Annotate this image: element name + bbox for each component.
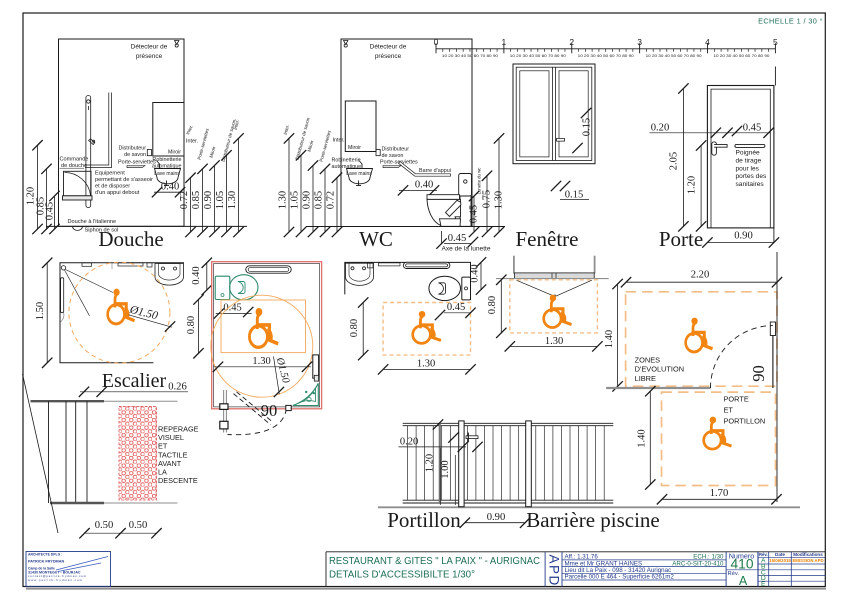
svg-text:de savon: de savon (124, 152, 146, 158)
svg-text:0.40: 0.40 (470, 264, 481, 282)
svg-text:10 20 30 40 50 60 70 80 90: 10 20 30 40 50 60 70 80 90 (578, 53, 635, 58)
svg-text:ARC-0-SIT-20-410: ARC-0-SIT-20-410 (672, 560, 724, 567)
svg-text:0.90: 0.90 (302, 191, 313, 209)
svg-text:3: 3 (637, 37, 642, 47)
svg-text:1.30: 1.30 (252, 356, 270, 367)
svg-text:0.90: 0.90 (487, 512, 506, 523)
svg-text:portes des: portes des (736, 173, 767, 180)
svg-text:0.15: 0.15 (582, 118, 593, 136)
svg-text:1: 1 (502, 37, 507, 47)
svg-text:15/06/2015: 15/06/2015 (769, 558, 791, 563)
svg-text:Distributeur: Distributeur (118, 146, 146, 152)
svg-text:2.05: 2.05 (669, 152, 680, 170)
svg-text:10 20 30 40 50 60 70 80 90: 10 20 30 40 50 60 70 80 90 (510, 53, 567, 58)
svg-text:2: 2 (569, 37, 574, 47)
svg-text:Fenêtre: Fenêtre (516, 227, 579, 251)
svg-text:0.45: 0.45 (743, 123, 762, 134)
svg-text:ZONES: ZONES (635, 356, 661, 365)
svg-text:1.05: 1.05 (215, 191, 226, 209)
svg-text:90: 90 (749, 365, 768, 382)
svg-text:ARCHITECTE DPLG :: ARCHITECTE DPLG : (28, 553, 62, 557)
svg-text:DESCENTE: DESCENTE (158, 476, 198, 485)
svg-text:RESTAURANT & GITES " LA PAIX ": RESTAURANT & GITES " LA PAIX " - AURIGNA… (329, 556, 540, 567)
svg-text:PORTE: PORTE (724, 395, 749, 404)
svg-text:Commande: Commande (60, 157, 89, 163)
svg-text:de tirage: de tirage (736, 157, 762, 164)
svg-text:Miroir: Miroir (348, 145, 361, 151)
svg-text:1.40: 1.40 (604, 330, 615, 348)
svg-text:0.20: 0.20 (400, 436, 418, 447)
svg-text:Robinetterie: Robinetterie (332, 158, 361, 164)
svg-text:ET: ET (724, 406, 734, 415)
svg-text:4: 4 (705, 37, 710, 47)
svg-text:0.40: 0.40 (415, 180, 433, 191)
svg-text:2.20: 2.20 (691, 270, 710, 281)
svg-text:d'un appui debout: d'un appui debout (95, 190, 140, 196)
svg-text:Rév.: Rév. (759, 552, 768, 557)
svg-text:permettant de s'asseoir: permettant de s'asseoir (95, 177, 153, 183)
svg-text:Détecteur de: Détecteur de (370, 44, 407, 51)
svg-text:1.70: 1.70 (710, 488, 729, 499)
svg-text:présence: présence (375, 53, 402, 60)
svg-text:APD: APD (547, 555, 562, 587)
svg-text:Miroir: Miroir (168, 150, 181, 156)
svg-text:Poignée: Poignée (736, 150, 761, 157)
svg-text:1.20: 1.20 (687, 176, 698, 194)
svg-text:Lave mains: Lave mains (346, 171, 372, 177)
svg-text:Modifications: Modifications (793, 552, 823, 557)
svg-text:Rév.: Rév. (728, 571, 740, 577)
svg-text:Lave mains: Lave mains (154, 171, 180, 177)
svg-text:et de disposer: et de disposer (95, 184, 130, 190)
svg-text:5: 5 (773, 37, 778, 47)
svg-text:Détecteur de: Détecteur de (131, 44, 168, 51)
svg-text:0.90: 0.90 (734, 231, 753, 242)
svg-text:0.20: 0.20 (651, 123, 670, 134)
svg-text:1.40: 1.40 (637, 429, 648, 447)
svg-text:ECHELLE 1 / 30 °: ECHELLE 1 / 30 ° (758, 17, 823, 26)
svg-text:présence: présence (136, 53, 163, 60)
svg-text:Date: Date (775, 552, 785, 557)
svg-text:10 20 30 40 50 60 70 80 90: 10 20 30 40 50 60 70 80 90 (713, 53, 770, 58)
svg-text:PATRICK FRYDMAN: PATRICK FRYDMAN (28, 559, 64, 563)
svg-text:1.30: 1.30 (545, 336, 563, 347)
svg-text:Inter.: Inter. (333, 138, 345, 144)
svg-text:Inter.: Inter. (186, 139, 198, 145)
svg-text:1.30: 1.30 (417, 358, 435, 369)
svg-text:0.85: 0.85 (191, 191, 202, 209)
svg-text:Barre d'appui: Barre d'appui (419, 168, 451, 174)
svg-text:DETAILS D'ACCESSIBILTE 1/30°: DETAILS D'ACCESSIBILTE 1/30° (329, 570, 475, 581)
svg-text:Barrière piscine: Barrière piscine (526, 508, 660, 532)
svg-text:0.45: 0.45 (45, 202, 56, 220)
svg-text:0.72: 0.72 (326, 191, 337, 209)
svg-text:0.45: 0.45 (448, 233, 467, 244)
svg-text:EMISSION APD: EMISSION APD (792, 558, 823, 563)
svg-text:0.80: 0.80 (487, 296, 498, 314)
svg-text:A: A (739, 574, 748, 588)
svg-text:D'EVOLUTION: D'EVOLUTION (635, 365, 684, 374)
svg-text:10 20 30 40 50 60 70 80 90: 10 20 30 40 50 60 70 80 90 (442, 53, 499, 58)
svg-text:1.50: 1.50 (35, 302, 46, 320)
svg-text:de savon: de savon (382, 153, 404, 159)
svg-text:Escalier: Escalier (102, 370, 167, 392)
svg-text:WC: WC (359, 227, 393, 251)
svg-text:1.30: 1.30 (227, 191, 238, 209)
svg-text:Douche: Douche (98, 227, 163, 251)
svg-text:10 20 30 40 50 60 70 80 90: 10 20 30 40 50 60 70 80 90 (646, 53, 703, 58)
svg-text:sanitaires: sanitaires (736, 181, 765, 188)
svg-text:90: 90 (261, 401, 278, 420)
svg-text:0.72: 0.72 (179, 191, 190, 209)
svg-text:0.80: 0.80 (186, 316, 197, 334)
svg-text:Portillon: Portillon (387, 508, 461, 532)
svg-text:1.20: 1.20 (425, 454, 436, 472)
svg-text:Douche à l'italienne: Douche à l'italienne (68, 219, 117, 225)
svg-text:Parcelle 000 E 464 - Supe: Parcelle 000 E 464 - Superficie 6261m2 (565, 574, 675, 581)
svg-text:0.26: 0.26 (168, 382, 187, 393)
svg-text:Porte-serviettes: Porte-serviettes (118, 160, 156, 166)
svg-text:0.15: 0.15 (565, 190, 584, 201)
svg-text:1.00: 1.00 (440, 460, 451, 478)
svg-text:PORTILLON: PORTILLON (724, 417, 766, 426)
svg-text:Axe de la lunette: Axe de la lunette (441, 246, 490, 253)
svg-text:E: E (761, 581, 766, 588)
svg-text:1.05: 1.05 (290, 191, 301, 209)
svg-text:0.85: 0.85 (314, 191, 325, 209)
svg-text:0.40: 0.40 (161, 182, 179, 193)
svg-text:0.50: 0.50 (129, 520, 148, 531)
svg-text:Distributeur: Distributeur (382, 147, 410, 153)
svg-text:pour les: pour les (736, 165, 760, 172)
svg-text:0.45: 0.45 (447, 302, 465, 313)
svg-text:LIBRE: LIBRE (635, 374, 656, 383)
svg-text:0.80: 0.80 (349, 319, 360, 337)
svg-text:0.40: 0.40 (191, 266, 202, 284)
svg-text:Robinetterie: Robinetterie (152, 157, 181, 163)
svg-text:Porte: Porte (659, 227, 703, 251)
svg-text:1.30: 1.30 (278, 191, 289, 209)
svg-text:Equipement: Equipement (95, 171, 125, 177)
svg-text:0.90: 0.90 (203, 191, 214, 209)
svg-text:410: 410 (730, 556, 753, 571)
svg-text:www.patrick-frydman.com: www.patrick-frydman.com (28, 578, 83, 582)
svg-text:0.50: 0.50 (95, 520, 114, 531)
